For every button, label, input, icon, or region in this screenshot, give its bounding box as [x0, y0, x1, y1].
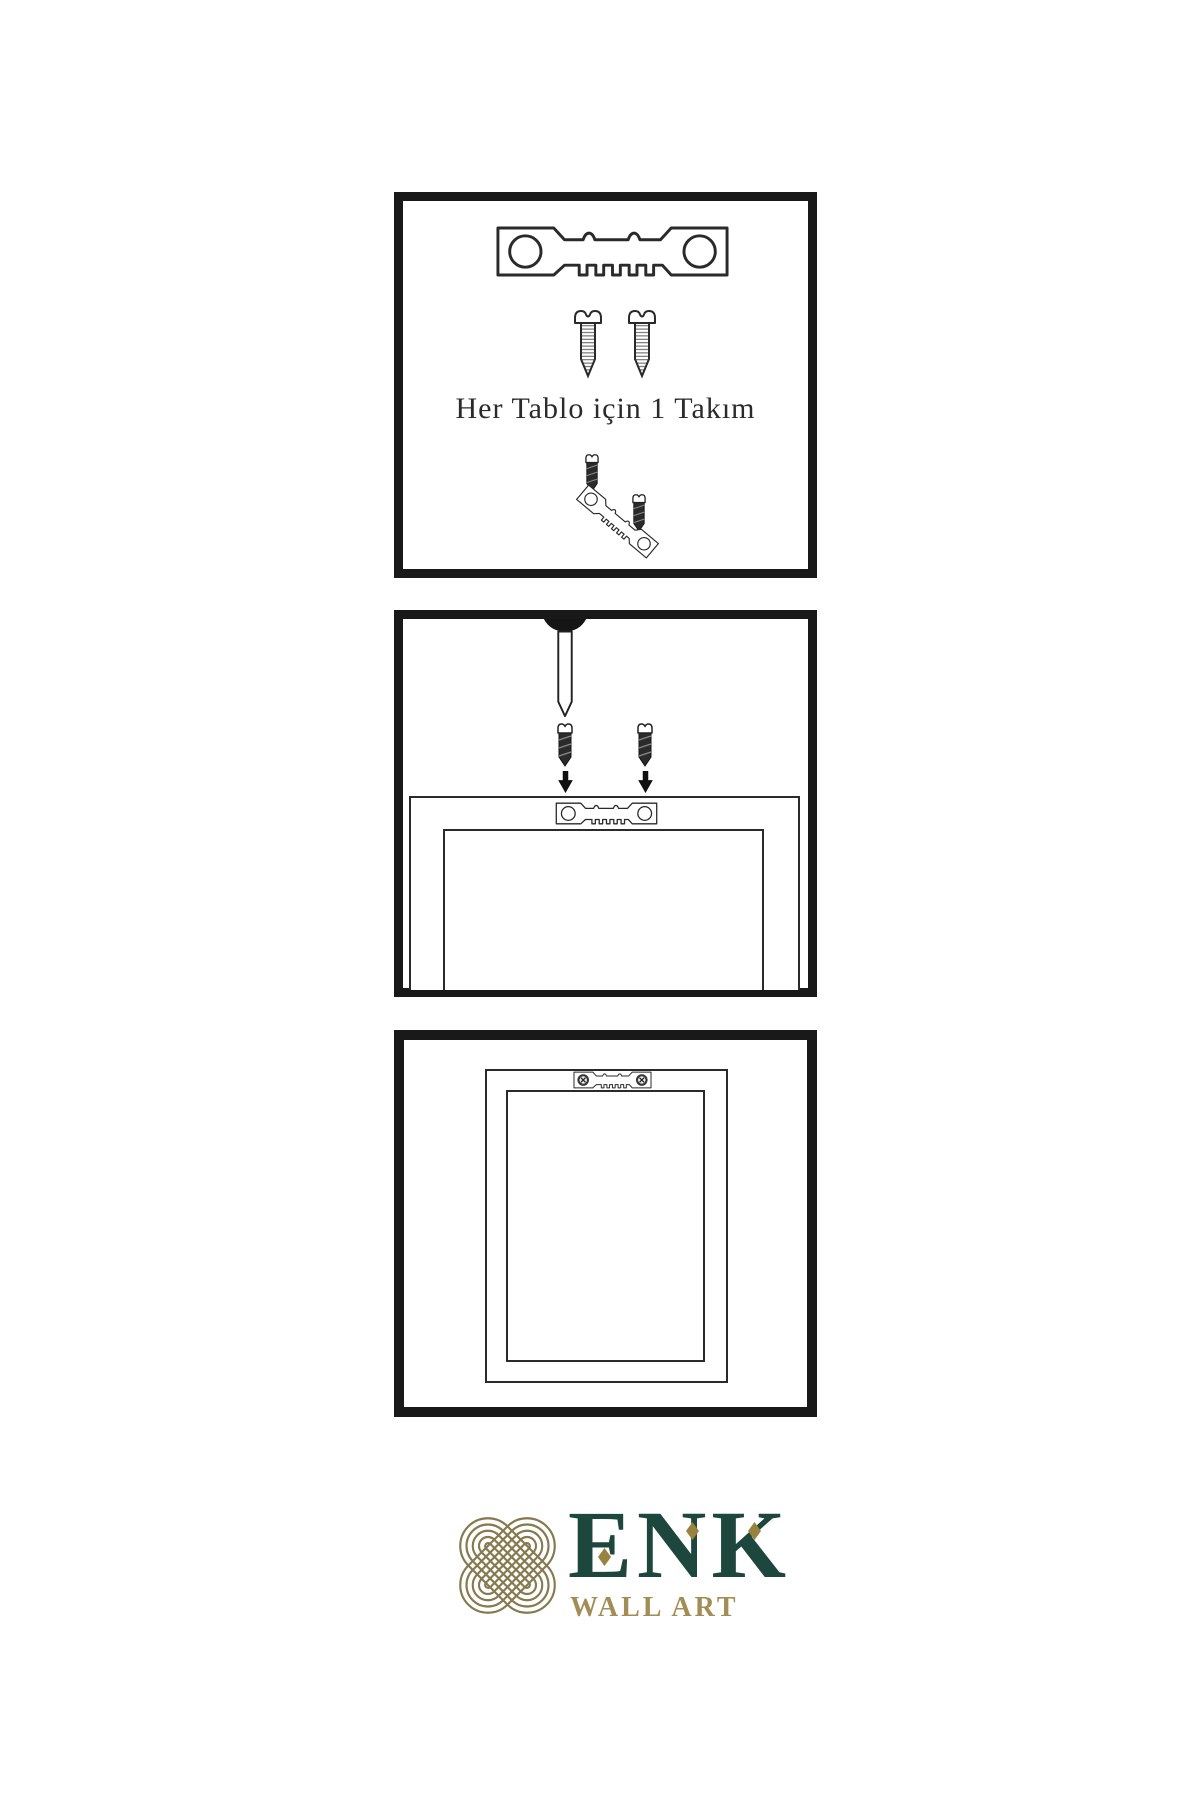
step-1-caption: Her Tablo için 1 Takım	[403, 392, 808, 426]
instruction-sheet: Her Tablo için 1 Takım ENK WALL ART	[0, 0, 1200, 1800]
wall-nail-icon	[542, 619, 588, 719]
knot-logo-icon	[445, 1503, 570, 1628]
arrow-down-icon	[638, 771, 653, 793]
screw-dark-icon	[555, 722, 575, 768]
screw-dark-icon	[635, 722, 655, 768]
step-1-panel: Her Tablo için 1 Takım	[394, 192, 817, 578]
step-2-panel	[394, 610, 817, 997]
screw-icon	[573, 307, 603, 381]
frame-back-inner-outline	[443, 829, 764, 990]
sawtooth-hanger-icon	[555, 800, 658, 827]
step-3-panel	[394, 1030, 817, 1417]
arrow-down-icon	[558, 771, 573, 793]
screw-icon	[627, 307, 657, 381]
brand-logo: ENK WALL ART	[440, 1495, 780, 1635]
frame-back-inner-outline	[506, 1090, 705, 1362]
screw-hanger-assembly	[573, 449, 668, 559]
sawtooth-hanger-icon	[495, 225, 730, 278]
brand-wordmark: ENK	[568, 1497, 791, 1593]
mounted-hanger-icon	[573, 1071, 652, 1089]
brand-tagline: WALL ART	[570, 1594, 739, 1622]
